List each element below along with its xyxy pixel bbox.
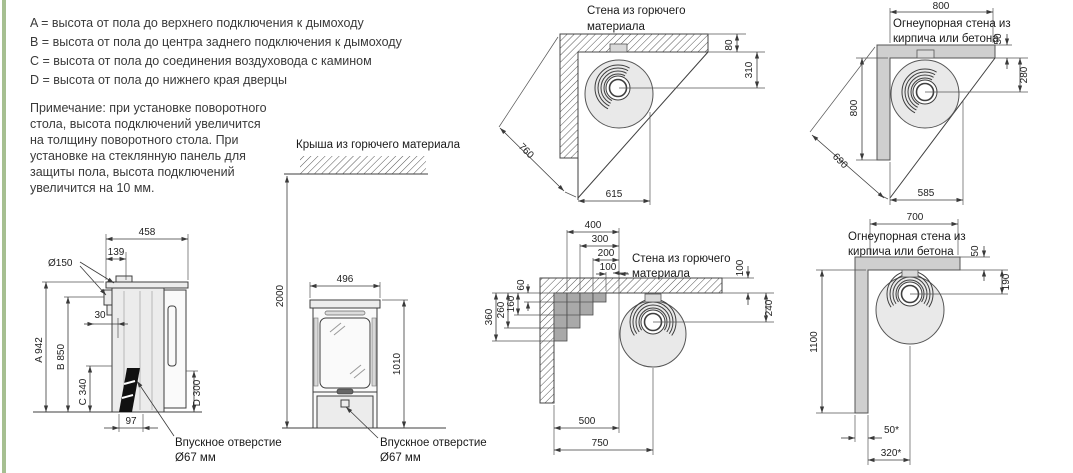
front-view-dimensions: 2000 496 1010 Впускное отверстие Ø67 мм xyxy=(275,176,487,464)
manual-page: A = высота от пола до верхнего подключен… xyxy=(0,0,1073,473)
dim-585: 585 xyxy=(918,188,935,199)
dim-139: 139 xyxy=(108,247,125,258)
wall-label-line2: кирпича или бетона xyxy=(848,246,954,258)
legend-line-b: B = высота от пола до центра заднего под… xyxy=(30,33,402,52)
dim-1100: 1100 xyxy=(809,331,820,353)
dim-100-right: 100 xyxy=(735,259,746,276)
stove-side-view-drawing: 458 139 Ø150 A 942 B 850 C 340 D 300 97 xyxy=(18,222,285,473)
wall-label-line1: Огнеупорная стена из xyxy=(893,18,1011,30)
dim-60: 60 xyxy=(516,279,527,291)
dim-280: 280 xyxy=(1019,66,1030,83)
dim-260: 260 xyxy=(496,301,507,318)
stepped-firewall-drawing: 400 300 200 100 Стена из горючего матери… xyxy=(470,218,785,470)
dim-100-top: 100 xyxy=(600,262,617,273)
dim-690: 690 xyxy=(830,151,850,171)
dim-80: 80 xyxy=(724,39,735,51)
dim-1010: 1010 xyxy=(392,352,403,375)
wall-label-line2: кирпича или бетона xyxy=(893,33,999,45)
stove-top-view xyxy=(620,294,686,367)
stove-top-view xyxy=(585,44,653,128)
dim-50: 50 xyxy=(993,33,1004,45)
inlet-label-line2: Ø67 мм xyxy=(175,452,216,464)
dim-97: 97 xyxy=(125,416,137,427)
dim-700: 700 xyxy=(907,212,924,223)
wall-label-line2: материала xyxy=(587,21,646,33)
installation-note: Примечание: при установке поворотного ст… xyxy=(30,100,267,196)
dim-615: 615 xyxy=(606,189,623,200)
dim-B: B 850 xyxy=(56,343,67,370)
dim-50-star: 50* xyxy=(884,425,899,436)
wall-label-line2: материала xyxy=(632,268,691,280)
inlet-label-line2: Ø67 мм xyxy=(380,452,421,464)
dim-800-top: 800 xyxy=(933,1,950,12)
corner-firebrick-bottom-drawing: 700 Огнеупорная стена из кирпича или бет… xyxy=(785,208,1073,470)
dim-360: 360 xyxy=(484,308,495,325)
dim-2000: 2000 xyxy=(275,284,286,307)
dim-400: 400 xyxy=(585,220,602,231)
dim-30: 30 xyxy=(94,310,106,321)
corner-combustible-drawing: Стена из горючего материала 80 310 xyxy=(478,2,778,210)
dim-300: 300 xyxy=(592,234,609,245)
dim-200: 200 xyxy=(598,248,615,259)
stove-top-view xyxy=(876,270,944,344)
dim-750: 750 xyxy=(592,438,609,449)
roof-label: Крыша из горючего материала xyxy=(296,139,461,151)
wall-label-line1: Стена из горючего xyxy=(587,5,686,17)
dim-C: C 340 xyxy=(78,378,89,405)
dim-800-left: 800 xyxy=(849,99,860,116)
dim-320-star: 320* xyxy=(881,448,902,459)
dim-50: 50 xyxy=(970,245,981,257)
legend-line-d: D = высота от пола до нижнего края дверц… xyxy=(30,71,402,90)
legend-line-a: A = высота от пола до верхнего подключен… xyxy=(30,14,402,33)
dimension-legend: A = высота от пола до верхнего подключен… xyxy=(30,14,402,90)
firewall-steps xyxy=(554,293,606,341)
wall-label-line1: Огнеупорная стена из xyxy=(848,231,966,243)
stove-top-view xyxy=(891,50,959,128)
wall-label-line1: Стена из горючего xyxy=(632,253,731,265)
dim-500: 500 xyxy=(579,416,596,427)
dim-310: 310 xyxy=(744,61,755,78)
dim-240: 240 xyxy=(764,299,775,316)
stove-front-outline xyxy=(282,300,446,428)
stepped-bottom-dimensions: 500 750 xyxy=(554,368,653,455)
corner-firebrick-top-drawing: 800 Огнеупорная стена из кирпича или бет… xyxy=(780,2,1073,210)
combustible-roof xyxy=(284,156,428,174)
legend-line-c: C = высота от пола до соединения воздухо… xyxy=(30,52,402,71)
dim-A: A 942 xyxy=(34,337,45,363)
dim-760: 760 xyxy=(516,141,536,161)
dim-D: D 300 xyxy=(192,379,203,406)
stove-front-view-drawing: Крыша из горючего материала 2000 xyxy=(253,130,488,473)
page-left-border xyxy=(2,0,6,473)
flue-diameter-label: Ø150 xyxy=(48,258,73,269)
dim-496: 496 xyxy=(337,274,354,285)
dim-458: 458 xyxy=(139,227,156,238)
